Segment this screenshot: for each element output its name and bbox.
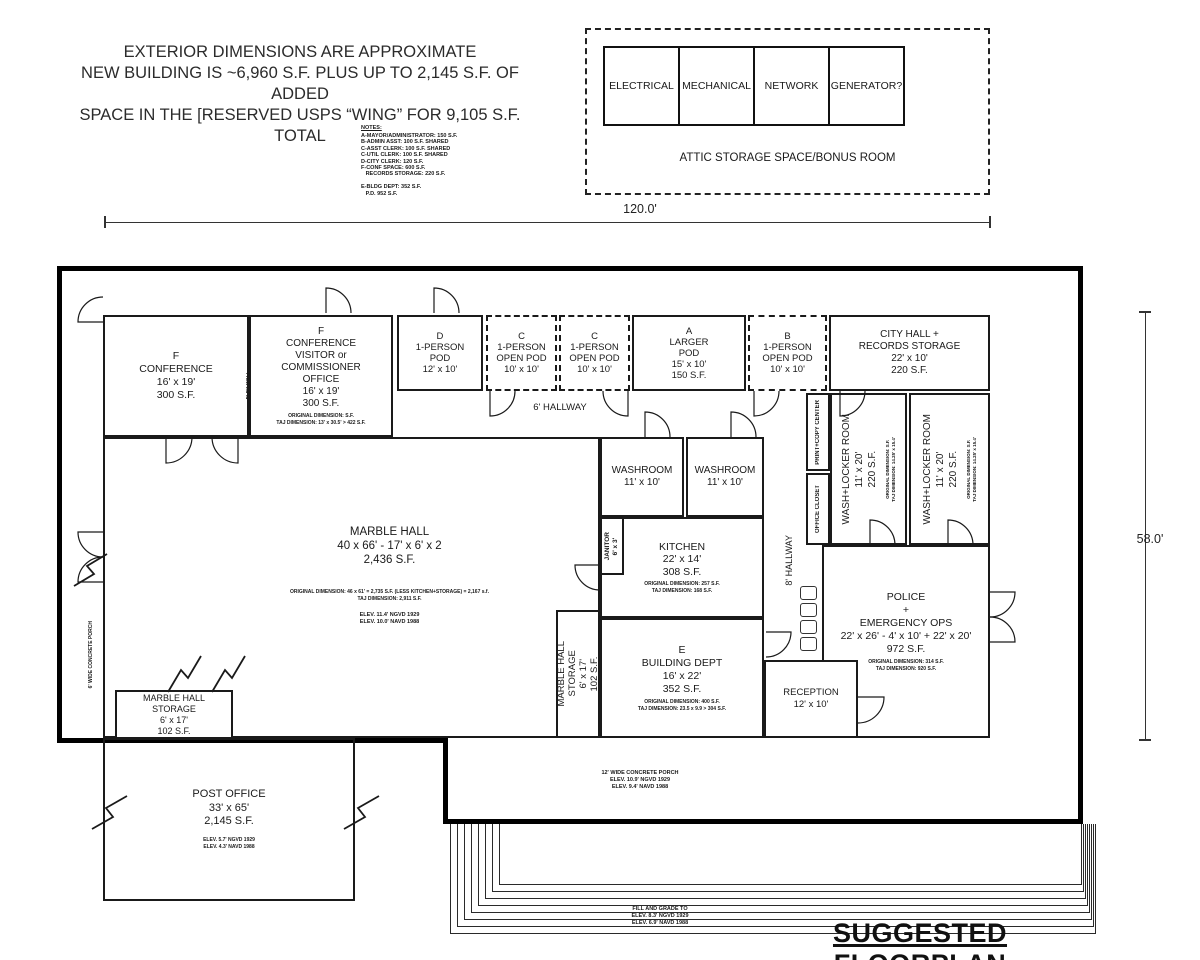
left-porch-label-wrap: 6' WIDE CONCRETE PORCH	[84, 590, 98, 720]
room-label: WASH+LOCKER ROOM 11' x 20' 220 S.F.	[921, 414, 960, 524]
door-swing-icon	[78, 532, 103, 557]
room-city-hall-records: CITY HALL + RECORDS STORAGE 22' x 10' 22…	[829, 315, 990, 391]
room-label: WASHROOM 11' x 10'	[612, 465, 673, 489]
dimension-tick	[1139, 739, 1151, 741]
room-label: F CONFERENCE 16' x 19' 300 S.F.	[139, 350, 213, 402]
storage-cabinet-icon	[800, 620, 817, 634]
attic-utility-cells: ELECTRICAL MECHANICAL NETWORK GENERATOR?	[603, 46, 905, 126]
room-sub-dimensions: ORIGINAL DIMENSION: S.F. TAJ DIMENSION: …	[966, 437, 978, 502]
door-swing-icon	[754, 391, 779, 416]
exterior-wall-top	[57, 266, 1083, 271]
storage-cabinet-icon	[800, 586, 817, 600]
room-pod-a: A LARGER POD 15' x 10' 150 S.F.	[632, 315, 746, 391]
room-sub-dimensions: ORIGINAL DIMENSION: 46 x 61' = 2,735 S.F…	[290, 589, 489, 602]
room-conference-f: F CONFERENCE 16' x 19' 300 S.F.	[103, 315, 249, 437]
room-label: KITCHEN 22' x 14' 308 S.F.	[659, 541, 705, 579]
room-label: C 1-PERSON OPEN POD 10' x 10'	[569, 331, 619, 375]
room-label: A LARGER POD 15' x 10' 150 S.F.	[669, 326, 708, 381]
hallway-6-label: 6' HALLWAY	[500, 402, 620, 413]
fill-grade-note: FILL AND GRADE TO ELEV. 8.3' NGVD 1929 E…	[575, 906, 745, 927]
attic-cell-mechanical: MECHANICAL	[678, 48, 753, 124]
room-washroom-2: WASHROOM 11' x 10'	[686, 437, 764, 517]
exterior-wall-left	[57, 266, 62, 743]
door-swing-icon	[78, 557, 103, 582]
bottom-porch-label: 12' WIDE CONCRETE PORCH ELEV. 10.9' NGVD…	[560, 770, 720, 791]
police-text-stack: POLICE + EMERGENCY OPS 22' x 26' - 4' x …	[841, 591, 972, 672]
storage-cabinet-icon	[800, 603, 817, 617]
hallway-8-label: 8' HALLWAY	[784, 535, 794, 586]
floorplan-sheet: EXTERIOR DIMENSIONS ARE APPROXIMATE NEW …	[0, 0, 1200, 960]
left-porch-label: 6' WIDE CONCRETE PORCH	[88, 621, 94, 688]
attic-storage-box: ELECTRICAL MECHANICAL NETWORK GENERATOR?…	[585, 28, 990, 195]
room-marble-hall-storage-side: MARBLE HALL STORAGE 6' x 17' 102 S.F.	[556, 610, 600, 738]
room-pod-d: D 1-PERSON POD 12' x 10'	[397, 315, 483, 391]
room-label: POST OFFICE 33' x 65' 2,145 S.F.	[192, 788, 265, 829]
height-dimension-line	[1145, 312, 1146, 740]
door-swing-icon	[645, 412, 670, 437]
room-label: C 1-PERSON OPEN POD 10' x 10'	[496, 331, 546, 375]
room-label: D 1-PERSON POD 12' x 10'	[416, 331, 465, 375]
notes-list: A-MAYOR/ADMINISTRATOR: 150 S.F. B-ADMIN …	[361, 133, 457, 197]
room-marble-hall-storage: MARBLE HALL STORAGE 6' x 17' 102 S.F.	[115, 690, 233, 739]
width-dimension-line	[105, 222, 990, 223]
door-swing-icon	[434, 288, 459, 313]
attic-label: ATTIC STORAGE SPACE/BONUS ROOM	[587, 152, 988, 164]
sheet-title: SUGGESTED FLOORPLAN	[760, 918, 1080, 960]
room-sub-dimensions: ORIGINAL DIMENSION: 257 S.F. TAJ DIMENSI…	[644, 581, 719, 594]
dimension-tick	[104, 216, 106, 228]
room-label: MARBLE HALL STORAGE 6' x 17' 102 S.F.	[556, 641, 600, 706]
room-elevation-note: ELEV. 5.7' NGVD 1929 ELEV. 4.3' NAVD 198…	[203, 837, 255, 851]
room-sub-dimensions: ORIGINAL DIMENSION: 400 S.F. TAJ DIMENSI…	[638, 699, 726, 712]
room-sub-dimensions: ORIGINAL DIMENSION: S.F. TAJ DIMENSION: …	[276, 413, 365, 426]
room-office-closet: OFFICE CLOSET	[806, 473, 830, 545]
door-swing-icon	[990, 617, 1015, 642]
door-swing-icon	[78, 297, 103, 322]
door-swing-icon	[326, 288, 351, 313]
room-label: WASHROOM 11' x 10'	[695, 465, 756, 489]
room-sub-dimensions: ORIGINAL DIMENSION: 314 S.F. TAJ DIMENSI…	[868, 659, 943, 672]
room-label: PRINT+COPY CENTER	[815, 400, 821, 465]
exterior-wall-right	[1078, 266, 1083, 824]
room-label: JANITOR 6' x 3'	[604, 532, 620, 560]
room-label: F CONFERENCE VISITOR or COMMISSIONER OFF…	[281, 326, 360, 410]
room-label: MARBLE HALL STORAGE 6' x 17' 102 S.F.	[143, 693, 205, 737]
room-sub-dimensions: ORIGINAL DIMENSION: S.F. TAJ DIMENSION: …	[885, 437, 897, 502]
room-building-dept: E BUILDING DEPT 16' x 22' 352 S.F. ORIGI…	[600, 618, 764, 738]
room-elevation-note: ELEV. 11.4' NGVD 1929 ELEV. 10.0' NAVD 1…	[360, 612, 420, 626]
room-label: RECEPTION 12' x 10'	[783, 687, 838, 711]
room-washroom-1: WASHROOM 11' x 10'	[600, 437, 684, 517]
room-pod-c1: C 1-PERSON OPEN POD 10' x 10'	[486, 315, 557, 391]
room-label: POLICE + EMERGENCY OPS 22' x 26' - 4' x …	[841, 591, 972, 656]
marble-hall-text-stack: MARBLE HALL 40 x 66' - 17' x 6' x 2 2,43…	[105, 525, 598, 626]
dimension-tick	[989, 216, 991, 228]
room-janitor: JANITOR 6' x 3'	[600, 517, 624, 575]
stair-step-line	[499, 824, 1082, 885]
attic-cell-network: NETWORK	[753, 48, 828, 124]
hallway-8-label-wrap: 8' HALLWAY	[780, 510, 798, 610]
room-conference-visitor: F CONFERENCE VISITOR or COMMISSIONER OFF…	[249, 315, 393, 437]
room-pod-b: B 1-PERSON OPEN POD 10' x 10'	[748, 315, 827, 391]
room-wash-locker-1: WASH+LOCKER ROOM 11' x 20' 220 S.F. ORIG…	[830, 393, 907, 545]
notes-title: NOTES:	[361, 125, 382, 131]
room-label: WASH+LOCKER ROOM 11' x 20' 220 S.F.	[840, 414, 879, 524]
attic-cell-generator: GENERATOR?	[828, 48, 903, 124]
room-label: CITY HALL + RECORDS STORAGE 22' x 10' 22…	[859, 329, 961, 377]
room-label: OFFICE CLOSET	[815, 485, 821, 533]
width-dimension-label: 120.0'	[560, 202, 720, 216]
door-swing-icon	[731, 412, 756, 437]
room-kitchen: KITCHEN 22' x 14' 308 S.F. ORIGINAL DIME…	[600, 517, 764, 618]
exterior-wall-step	[443, 738, 448, 824]
disclaimer-text: EXTERIOR DIMENSIONS ARE APPROXIMATE NEW …	[55, 42, 545, 147]
height-dimension-label: 58.0'	[1118, 532, 1182, 546]
dimension-tick	[1139, 311, 1151, 313]
door-swing-icon	[990, 592, 1015, 617]
room-reception: RECEPTION 12' x 10'	[764, 660, 858, 738]
room-label: MARBLE HALL 40 x 66' - 17' x 6' x 2 2,43…	[337, 525, 441, 567]
room-wash-locker-2: WASH+LOCKER ROOM 11' x 20' 220 S.F. ORIG…	[909, 393, 990, 545]
door-swing-icon	[766, 632, 791, 657]
room-pod-c2: C 1-PERSON OPEN POD 10' x 10'	[559, 315, 630, 391]
room-label: E BUILDING DEPT 16' x 22' 352 S.F.	[642, 644, 723, 696]
storage-cabinet-icon	[800, 637, 817, 651]
room-post-office: POST OFFICE 33' x 65' 2,145 S.F. ELEV. 5…	[103, 738, 355, 901]
attic-cell-electrical: ELECTRICAL	[605, 48, 678, 124]
room-print-copy-center: PRINT+COPY CENTER	[806, 393, 830, 471]
room-label: B 1-PERSON OPEN POD 10' x 10'	[762, 331, 812, 375]
